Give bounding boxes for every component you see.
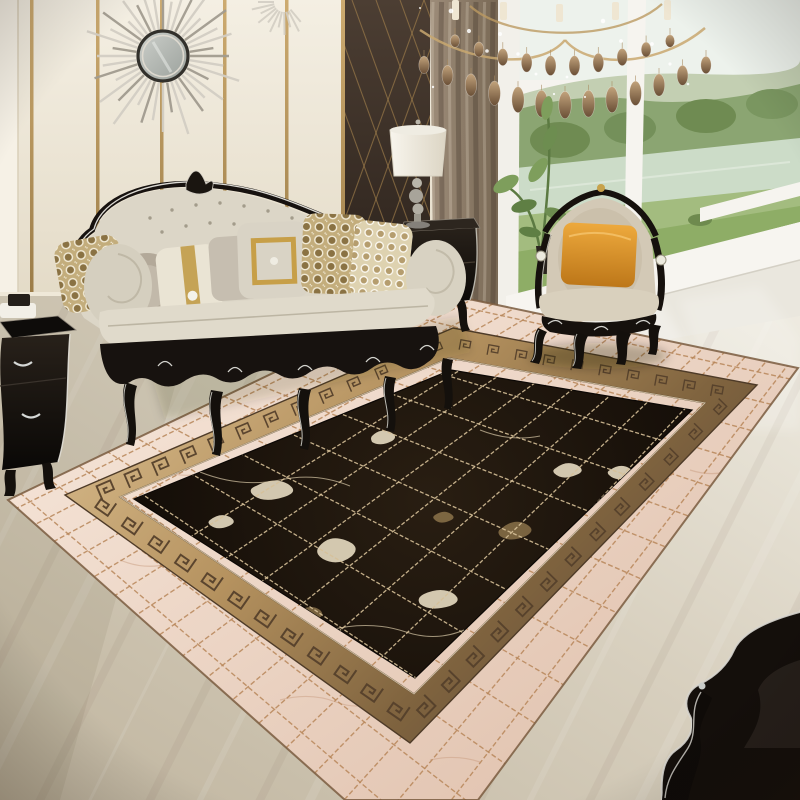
- living-room-photo: [0, 0, 800, 800]
- vignette: [0, 0, 800, 800]
- scene-canvas: [0, 0, 800, 800]
